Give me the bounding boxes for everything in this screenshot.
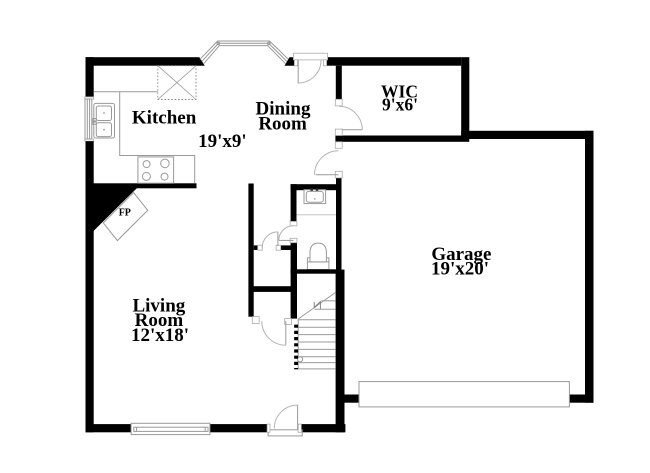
svg-text:Room: Room [258,113,307,134]
svg-text:19'x9': 19'x9' [198,131,247,152]
svg-text:19'x20': 19'x20' [431,259,489,280]
svg-text:9'x6': 9'x6' [382,94,418,114]
svg-text:FP: FP [119,208,131,219]
svg-text:12'x18': 12'x18' [131,325,189,346]
svg-text:Kitchen: Kitchen [132,108,197,129]
